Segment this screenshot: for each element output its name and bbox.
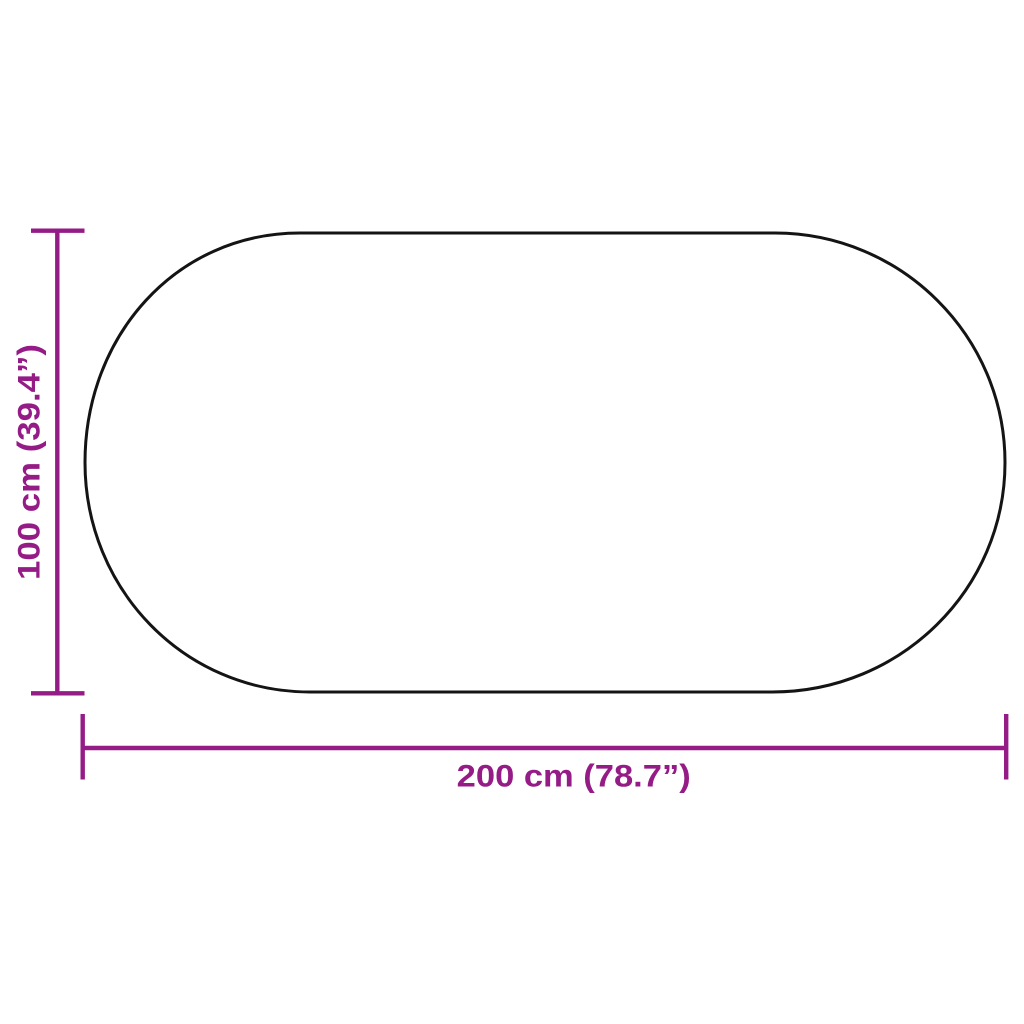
svg-text:200 cm (78.7”): 200 cm (78.7”): [457, 759, 691, 794]
svg-text:100 cm (39.4”): 100 cm (39.4”): [12, 344, 47, 580]
